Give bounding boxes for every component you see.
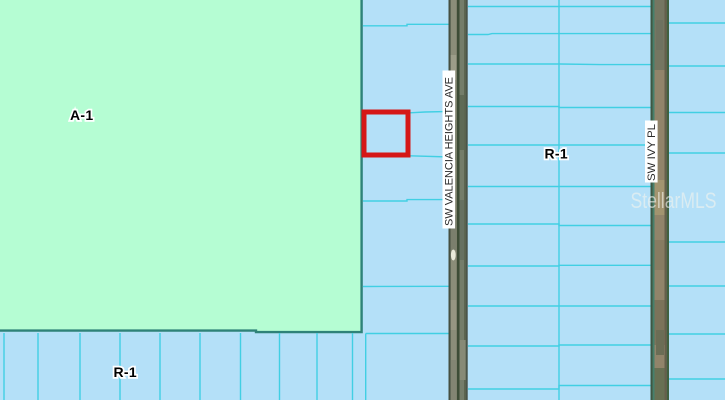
svg-text:StellarMLS: StellarMLS bbox=[631, 188, 717, 213]
svg-text:SW IVY PL: SW IVY PL bbox=[646, 124, 658, 181]
svg-text:R-1: R-1 bbox=[545, 146, 568, 162]
svg-text:A-1: A-1 bbox=[70, 107, 93, 123]
svg-text:R-1: R-1 bbox=[114, 364, 137, 380]
svg-text:SW VALENCIA HEIGHTS AVE: SW VALENCIA HEIGHTS AVE bbox=[443, 77, 455, 226]
